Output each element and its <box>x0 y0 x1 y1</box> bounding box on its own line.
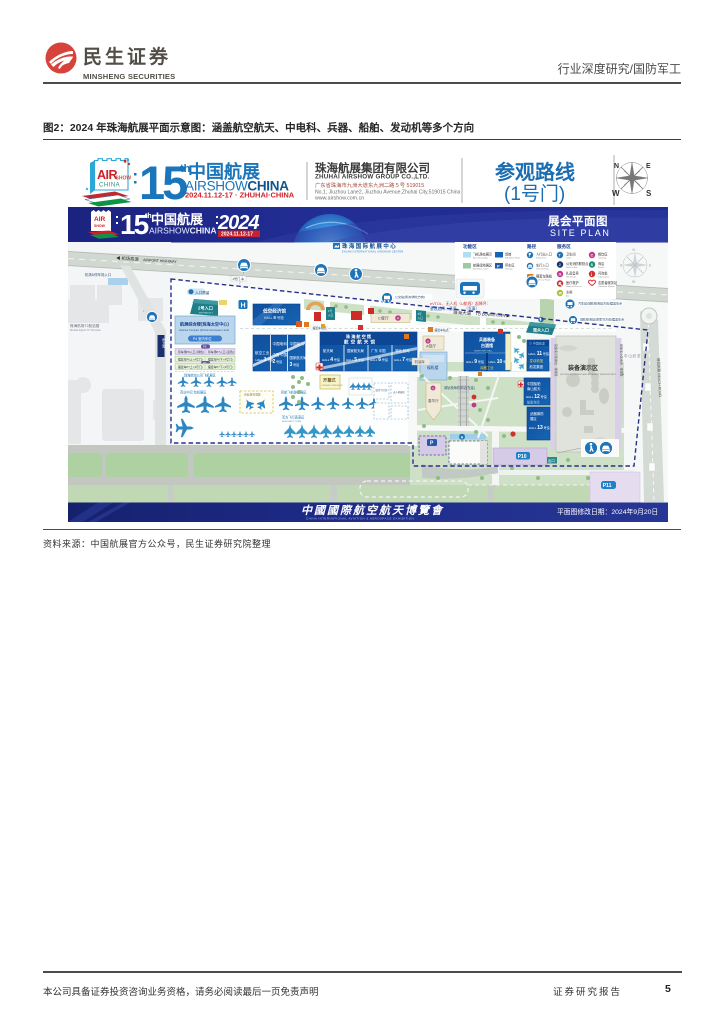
svg-text:2号入口: 2号入口 <box>198 305 213 312</box>
svg-text:中国 中国: 中国 中国 <box>273 352 288 357</box>
svg-text:P4 室内车位: P4 室内车位 <box>193 336 212 341</box>
svg-text:✕: ✕ <box>427 340 430 344</box>
svg-text:ZHUHAI INTERNATIONAL AIRSHOW C: ZHUHAI INTERNATIONAL AIRSHOW CENTER <box>342 251 403 254</box>
svg-text:Airshow Complex (Zhuhai Aerosp: Airshow Complex (Zhuhai Aerospace Land) <box>179 328 229 332</box>
svg-text:P11: P11 <box>603 483 612 489</box>
svg-text:白酒馆: 白酒馆 <box>481 342 493 348</box>
svg-text:W: W <box>612 189 620 198</box>
svg-text:商店: 商店 <box>598 261 604 266</box>
svg-text:W: W <box>559 292 563 296</box>
svg-text:停车场P7入口·(蓝色): 停车场P7入口·(蓝色) <box>208 350 234 354</box>
svg-text:GROUND EQUIPMENT AND ARMAMENT: GROUND EQUIPMENT AND ARMAMENT DEMONSTRAT… <box>560 373 625 376</box>
svg-text:Exhibition Halls: Exhibition Halls <box>505 257 521 260</box>
svg-text:国家航天局: 国家航天局 <box>290 355 308 360</box>
svg-text:AIRSHOWCHINA: AIRSHOWCHINA <box>149 226 217 236</box>
svg-text:3号: 3号 <box>418 312 422 316</box>
svg-text:南山航天: 南山航天 <box>527 386 541 391</box>
svg-text:4号门·车: 4号门·车 <box>233 276 245 281</box>
svg-text:中国电科: 中国电科 <box>273 341 288 346</box>
svg-text:1号: 1号 <box>328 309 332 313</box>
svg-text:Zhuhai Airport T2 Terminal: Zhuhai Airport T2 Terminal <box>70 328 101 332</box>
svg-text:G: G <box>559 273 562 277</box>
svg-text:摆渡车P7上·(4号门): 摆渡车P7上·(4号门) <box>178 365 203 369</box>
svg-text:P: P <box>497 264 500 269</box>
svg-text:Pedestrian: Pedestrian <box>536 257 547 260</box>
svg-text:湖北 航司: 湖北 航司 <box>395 348 410 353</box>
svg-text:2024.11.12-17: 2024.11.12-17 <box>221 232 253 238</box>
svg-text:出口: 出口 <box>548 458 555 463</box>
svg-text:Exhibition Lawn: Exhibition Lawn <box>473 268 489 271</box>
svg-text:无人机展区: 无人机展区 <box>393 390 406 394</box>
svg-text:低空飞行区: 低空飞行区 <box>376 388 389 392</box>
svg-text:珠海机场T2航站楼: 珠海机场T2航站楼 <box>70 323 100 328</box>
svg-text:民航飞机静态展区: 民航飞机静态展区 <box>281 390 307 395</box>
svg-text:www.airshow.com.cn: www.airshow.com.cn <box>315 196 364 202</box>
svg-text:船舶海洋: 船舶海洋 <box>527 400 541 405</box>
svg-text:装备演示区看台 · 观摩区: 装备演示区看台 · 观摩区 <box>620 344 625 377</box>
svg-text:珠海国际航展中心: 珠海国际航展中心 <box>342 242 397 250</box>
svg-text:候机楼: 候机楼 <box>427 365 439 370</box>
svg-text:展区: 展区 <box>530 416 537 421</box>
svg-text:N: N <box>614 163 619 170</box>
svg-text:SITE PLAN: SITE PLAN <box>550 228 610 238</box>
svg-text:问询处: 问询处 <box>598 271 608 276</box>
svg-text:E: E <box>646 163 651 170</box>
svg-text:停车区: 停车区 <box>505 263 515 268</box>
svg-text:OPENING CEREMONY: OPENING CEREMONY <box>322 385 344 387</box>
svg-text:S: S <box>646 189 652 198</box>
svg-text:Parking: Parking <box>505 268 513 271</box>
svg-text:国家航天局: 国家航天局 <box>347 348 365 353</box>
svg-text:军方飞行表演区: 军方飞行表演区 <box>282 415 305 420</box>
svg-text:广东省珠海市九洲大道东九洲二路５号 519015: 广东省珠海市九洲大道东九洲二路５号 519015 <box>315 181 424 189</box>
svg-text:发动机馆: 发动机馆 <box>530 358 544 363</box>
svg-text:春华厅: 春华厅 <box>428 398 439 403</box>
svg-text:航发集团: 航发集团 <box>530 364 544 369</box>
svg-text:Information: Information <box>598 276 610 279</box>
svg-text:入口预留: 入口预留 <box>195 290 210 295</box>
svg-text:P6: P6 <box>203 345 207 349</box>
svg-text:中国船舶: 中国船舶 <box>527 381 541 386</box>
svg-text:2024.11.12-17 · ZHUHAI·CHINA: 2024.11.12-17 · ZHUHAI·CHINA <box>185 191 295 200</box>
svg-text:HALL 8 号馆: HALL 8 号馆 <box>264 315 284 320</box>
svg-text:Service Bar: Service Bar <box>566 266 578 269</box>
svg-text:商业中巴 包机展区: 商业中巴 包机展区 <box>180 390 207 395</box>
svg-text:SHOW: SHOW <box>94 224 106 228</box>
svg-text:水吧: 水吧 <box>566 290 573 295</box>
svg-text:开幕式: 开幕式 <box>323 377 336 384</box>
svg-text:SHOW: SHOW <box>116 176 132 182</box>
svg-text:礼品售卖: 礼品售卖 <box>566 271 580 276</box>
svg-text:服务区: 服务区 <box>557 243 571 250</box>
svg-text:航空航天馆: 航空航天馆 <box>343 339 377 346</box>
svg-text:AEROBATIC TEAM: AEROBATIC TEAM <box>282 420 301 423</box>
svg-text:平面图修改日期：2024年9月20日: 平面图修改日期：2024年9月20日 <box>557 507 658 516</box>
svg-text:eVTOL、无人机（U航线）起降坪：: eVTOL、无人机（U航线）起降坪： <box>430 301 490 306</box>
svg-text:Toilet: Toilet <box>566 257 571 260</box>
svg-text:✕: ✕ <box>397 317 400 321</box>
svg-text:兵器装备: 兵器装备 <box>479 336 496 342</box>
svg-text:参观路线: 参观路线 <box>495 160 575 184</box>
svg-text:H: H <box>241 303 246 310</box>
svg-text:AIR: AIR <box>97 168 118 182</box>
svg-text:机油库: 机油库 <box>415 359 426 364</box>
svg-text:摆渡车站点: 摆渡车站点 <box>435 328 449 332</box>
svg-text:入口: 入口 <box>418 316 424 320</box>
svg-text:路径: 路径 <box>527 243 537 250</box>
svg-text:J: J <box>559 263 561 267</box>
svg-text:航展综合楼(珠海太空中心): 航展综合楼(珠海太空中心) <box>180 321 229 328</box>
svg-text:志愿者服务站: 志愿者服务站 <box>598 280 618 285</box>
svg-text:车行入口: 车行入口 <box>536 263 549 268</box>
svg-text:城轨珠海站(唐家湾方向)摆渡车点: 城轨珠海站(唐家湾方向)摆渡车点 <box>580 317 624 322</box>
svg-text:汽车站(城轨珠海站方向)摆渡车点: 汽车站(城轨珠海站方向)摆渡车点 <box>578 301 622 306</box>
svg-text:餐饮区: 餐饮区 <box>598 252 608 257</box>
svg-text:医疗救护: 医疗救护 <box>566 280 579 285</box>
svg-text:卫生间: 卫生间 <box>566 252 576 257</box>
svg-text:摆渡车P6上·(4号门): 摆渡车P6上·(4号门) <box>178 357 203 361</box>
svg-text:CHINA: CHINA <box>99 183 120 189</box>
svg-text:Catering: Catering <box>598 257 607 260</box>
svg-text:CHINA INTERNATIONAL AVIATION &: CHINA INTERNATIONAL AVIATION & AEROSPACE… <box>306 517 414 521</box>
svg-text:Aircraft Display: Aircraft Display <box>473 257 489 260</box>
svg-text:珠海航空公司飞机展区: 珠海航空公司飞机展区 <box>184 373 217 378</box>
svg-text:⊙ 中国航发: ⊙ 中国航发 <box>529 341 545 346</box>
svg-text:中國國際航空航天博覽會: 中國國際航空航天博覽會 <box>301 504 444 517</box>
svg-text:Volunteer Station: Volunteer Station <box>598 285 615 288</box>
svg-text:Medical Rescue: Medical Rescue <box>566 286 582 288</box>
svg-text:城轨珠海机场站(在建): 城轨珠海机场站(在建) <box>444 385 475 390</box>
svg-text:ZHUHAI AIRSHOW GROUP CO.,LTD.: ZHUHAI AIRSHOW GROUP CO.,LTD. <box>315 174 430 181</box>
svg-text:AIR: AIR <box>94 216 106 223</box>
svg-text:兵器工业: 兵器工业 <box>480 365 494 370</box>
svg-text:航天局: 航天局 <box>323 348 334 353</box>
svg-text:展会平面图: 展会平面图 <box>547 214 608 228</box>
svg-text:Bar: Bar <box>566 295 570 298</box>
svg-text:Gift Shops: Gift Shops <box>566 276 577 279</box>
svg-text:机场D停车场入口: 机场D停车场入口 <box>85 272 111 277</box>
svg-text:航空工业: 航空工业 <box>255 350 270 355</box>
svg-text:功能区: 功能区 <box>463 243 477 250</box>
svg-text:装备演示区看台 · 观摩区: 装备演示区看台 · 观摩区 <box>554 344 559 377</box>
svg-text:入口: 入口 <box>328 313 334 317</box>
svg-text:商业航天展区: 商业航天展区 <box>244 393 261 397</box>
svg-text:装备演示区: 装备演示区 <box>567 364 598 372</box>
svg-text:飞机静态展示: 飞机静态展示 <box>473 252 492 257</box>
svg-text:(1号门): (1号门) <box>504 183 565 205</box>
svg-text:ENTRANCE 2: ENTRANCE 2 <box>199 312 214 315</box>
svg-text:P10: P10 <box>518 454 527 460</box>
svg-text:摆渡车P7下·(4号门): 摆渡车P7下·(4号门) <box>208 365 233 369</box>
svg-text:金凤路: 金凤路 <box>162 338 167 349</box>
svg-text:WEAPONRY HALL: WEAPONRY HALL <box>474 350 494 353</box>
svg-text:低空经济馆: 低空经济馆 <box>262 308 286 315</box>
svg-text:垂直起降、悬停……（军事）: 垂直起降、悬停……（军事） <box>430 306 479 311</box>
svg-text:i: i <box>591 272 592 277</box>
svg-text:摆渡车路线: 摆渡车路线 <box>536 274 553 279</box>
svg-text:中 山 纪 念: 中 山 纪 念 <box>624 353 641 358</box>
svg-text:观众入口: 观众入口 <box>532 327 549 333</box>
svg-text:公安消防联勤点: 公安消防联勤点 <box>566 261 589 266</box>
svg-text:广东 中国: 广东 中国 <box>371 348 386 353</box>
svg-text:人行出入口: 人行出入口 <box>536 252 552 257</box>
svg-text:摆渡车P6下·(4号门): 摆渡车P6下·(4号门) <box>208 357 233 361</box>
svg-text:C: C <box>591 254 594 258</box>
svg-text:C餐厅: C餐厅 <box>378 315 389 321</box>
svg-text:航展绿地展区: 航展绿地展区 <box>473 263 493 268</box>
svg-text:停车场P6入口·(绿色): 停车场P6入口·(绿色) <box>178 350 204 354</box>
svg-text:中国商飞: 中国商飞 <box>290 341 305 346</box>
svg-text:A餐厅: A餐厅 <box>426 344 436 349</box>
svg-text:Vehicle Entry: Vehicle Entry <box>536 268 550 271</box>
svg-text:公交站(香洲/拱北方向): 公交站(香洲/拱北方向) <box>395 294 425 299</box>
svg-text:Stores: Stores <box>598 266 605 269</box>
svg-text:场馆: 场馆 <box>505 252 511 257</box>
svg-text:武器弹药: 武器弹药 <box>530 411 544 416</box>
